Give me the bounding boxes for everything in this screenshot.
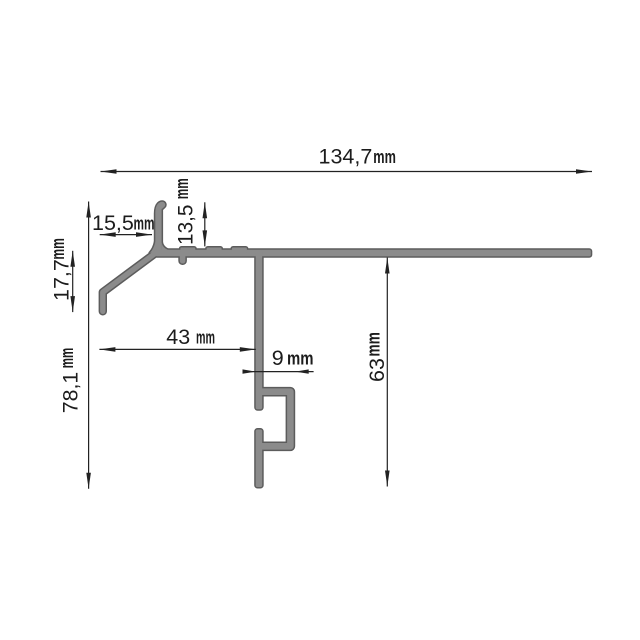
- svg-text:13,5: 13,5: [173, 204, 197, 245]
- svg-text:mm: mm: [134, 214, 155, 234]
- svg-text:mm: mm: [48, 238, 68, 260]
- svg-text:mm: mm: [287, 349, 314, 369]
- svg-text:43: 43: [166, 325, 190, 349]
- svg-text:9: 9: [272, 346, 284, 370]
- svg-text:15,5: 15,5: [92, 211, 134, 235]
- svg-text:134,7: 134,7: [319, 144, 373, 168]
- svg-text:mm: mm: [364, 332, 384, 357]
- svg-text:mm: mm: [172, 178, 192, 199]
- svg-text:17,7: 17,7: [49, 259, 73, 301]
- svg-text:78,1: 78,1: [58, 372, 82, 414]
- svg-text:63: 63: [365, 358, 389, 382]
- svg-text:mm: mm: [57, 348, 77, 369]
- svg-text:mm: mm: [196, 328, 215, 348]
- svg-text:mm: mm: [373, 147, 396, 167]
